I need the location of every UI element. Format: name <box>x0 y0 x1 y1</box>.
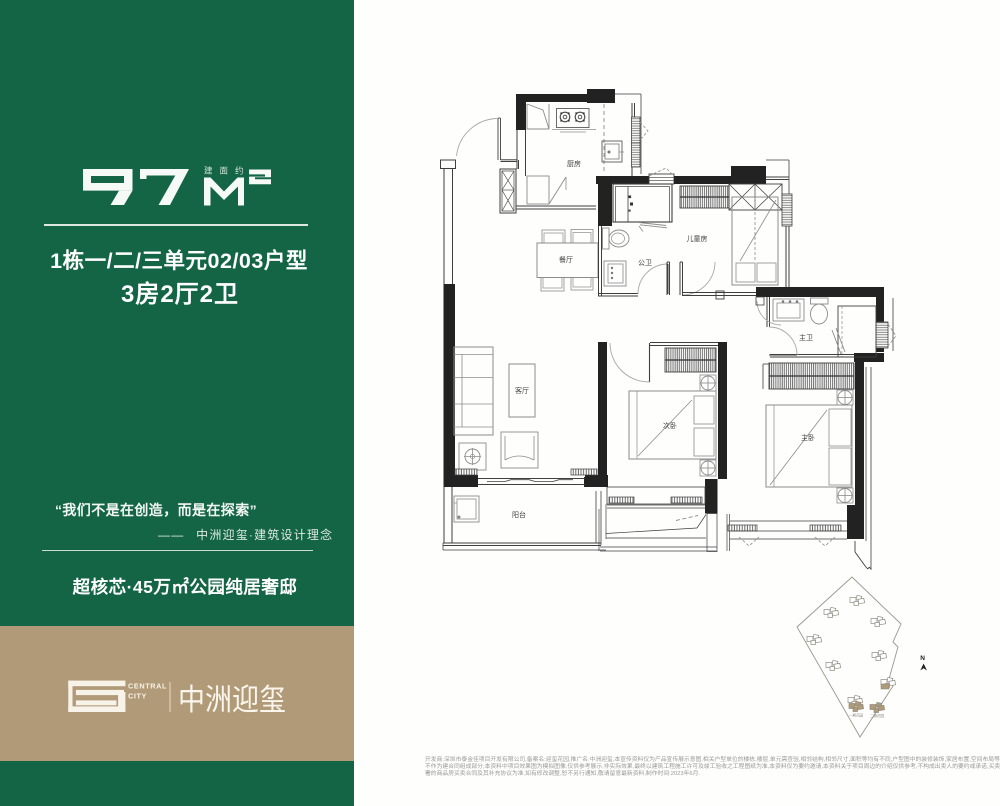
svg-text:次卧: 次卧 <box>663 421 677 430</box>
svg-text:开发商:深圳市泰金佳项目开发有限公司,备案名:迎玺花园,推广: 开发商:深圳市泰金佳项目开发有限公司,备案名:迎玺花园,推广名:中洲迎玺,本宣传… <box>425 755 1000 763</box>
svg-text:厨房: 厨房 <box>567 159 581 168</box>
svg-text:儿童房: 儿童房 <box>687 234 708 243</box>
svg-text:公卫: 公卫 <box>638 259 652 267</box>
svg-text:阳台: 阳台 <box>512 510 526 519</box>
svg-text:一期花园: 一期花园 <box>849 713 863 718</box>
svg-text:署的商品房买卖合同及其补充协议为准,如有修改调整,恕不另行通: 署的商品房买卖合同及其补充协议为准,如有修改调整,恕不另行通知,敬请留意最新资料… <box>425 769 700 777</box>
svg-text:N: N <box>920 655 925 662</box>
svg-text:不作为建合同组成部分;本资料中项目效果图为模拟图像,仅供参考: 不作为建合同组成部分;本资料中项目效果图为模拟图像,仅供参考展示,非实际效果,最… <box>425 762 1000 770</box>
svg-text:客厅: 客厅 <box>515 386 529 395</box>
svg-text:主卧: 主卧 <box>801 433 815 442</box>
svg-text:二期花园: 二期花园 <box>870 713 884 718</box>
svg-text:餐厅: 餐厅 <box>559 255 573 264</box>
svg-text:主卫: 主卫 <box>799 333 813 342</box>
